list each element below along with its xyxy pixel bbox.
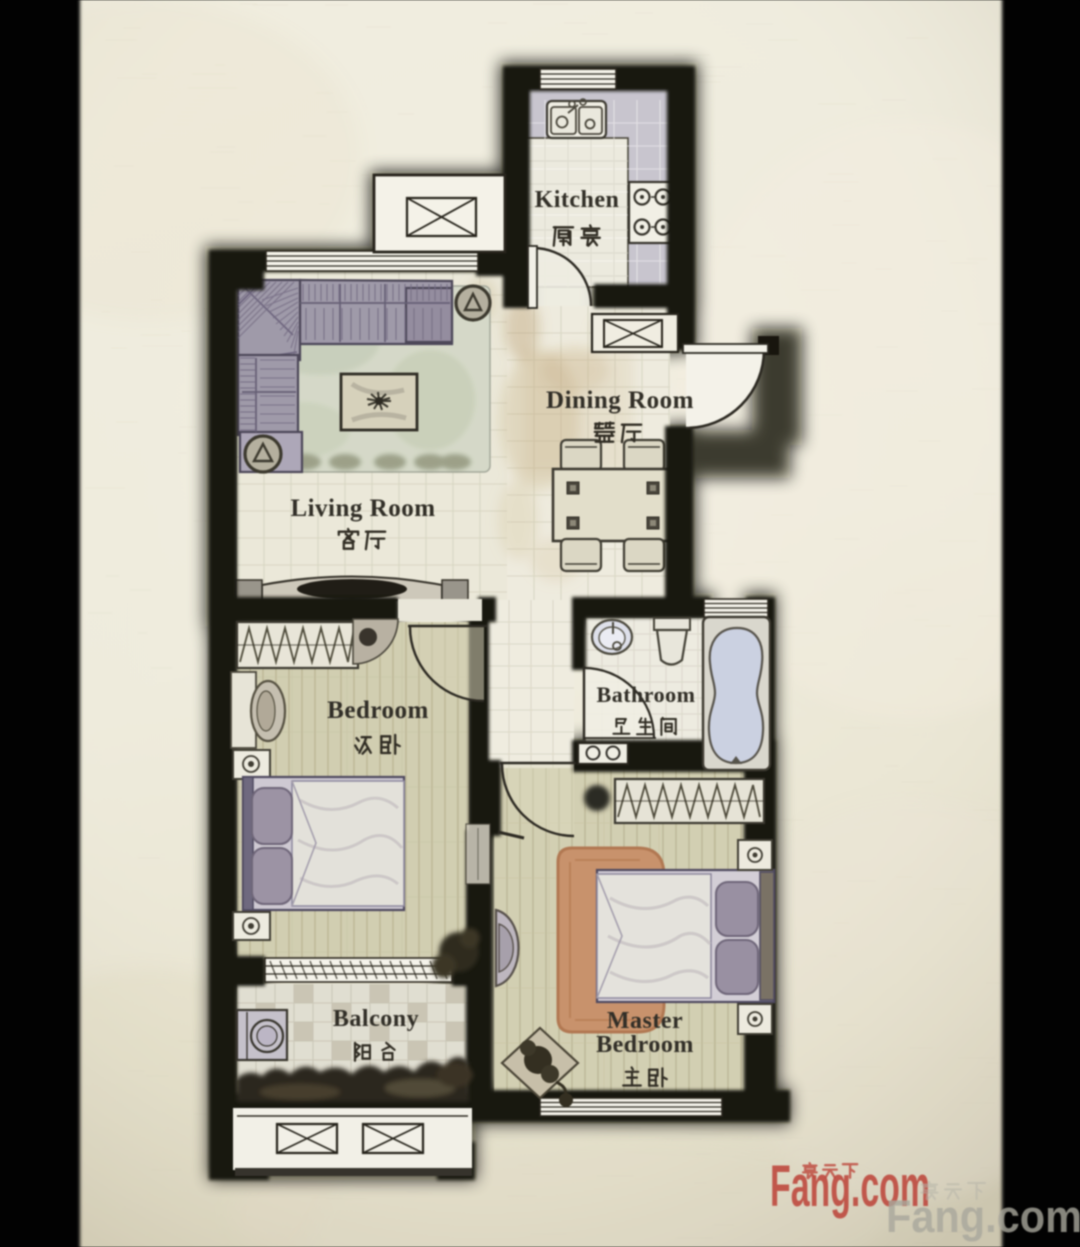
svg-text:Fang.com: Fang.com — [886, 1191, 1080, 1242]
svg-text:Bedroom: Bedroom — [327, 697, 429, 724]
svg-text:Living Room: Living Room — [290, 495, 435, 522]
svg-text:Dining Room: Dining Room — [546, 387, 694, 414]
svg-text:Master: Master — [607, 1008, 683, 1034]
svg-text:Balcony: Balcony — [333, 1006, 419, 1032]
svg-text:Bedroom: Bedroom — [596, 1032, 694, 1058]
svg-text:Bathroom: Bathroom — [597, 682, 696, 707]
svg-text:Kitchen: Kitchen — [535, 187, 620, 213]
